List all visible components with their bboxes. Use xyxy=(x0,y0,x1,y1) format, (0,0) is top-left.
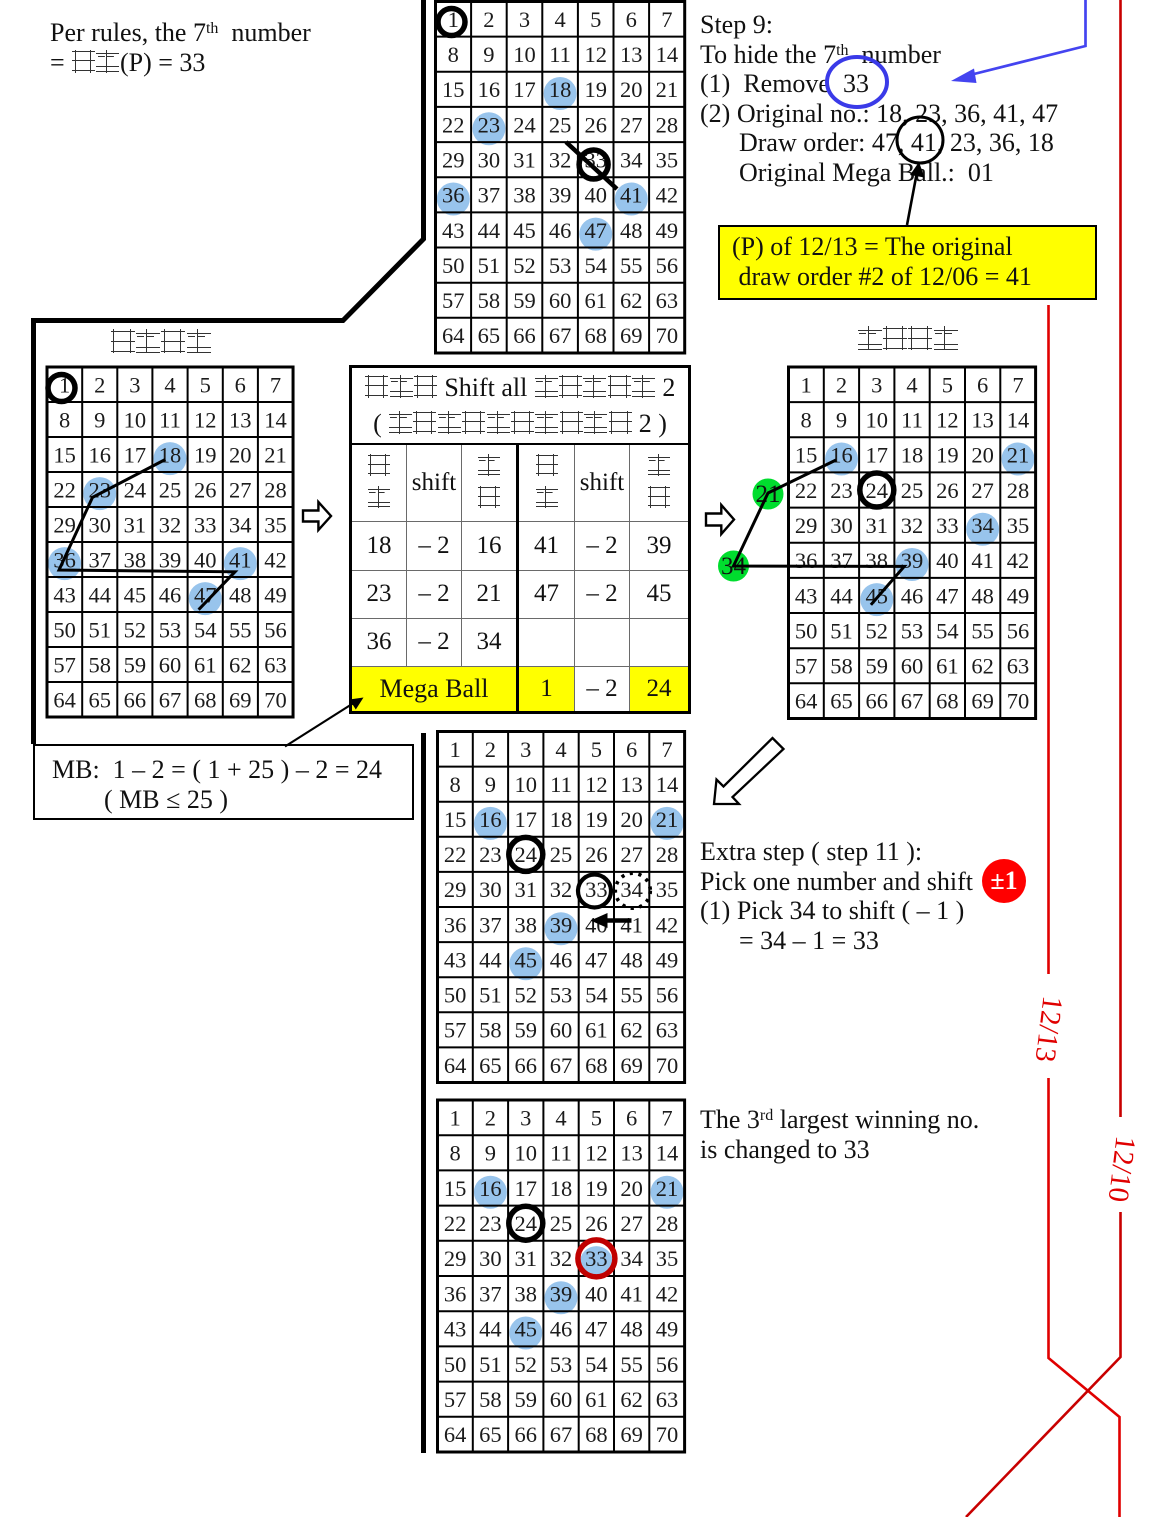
svg-text:14: 14 xyxy=(656,1141,679,1166)
svg-text:58: 58 xyxy=(88,652,111,677)
svg-text:66: 66 xyxy=(866,689,889,714)
svg-text:21: 21 xyxy=(1007,443,1030,468)
svg-text:18: 18 xyxy=(550,1176,573,1201)
svg-text:6: 6 xyxy=(977,372,988,397)
svg-text:60: 60 xyxy=(550,1018,573,1043)
svg-text:10: 10 xyxy=(124,407,147,432)
svg-text:32: 32 xyxy=(549,148,572,173)
svg-text:53: 53 xyxy=(159,617,182,642)
svg-text:15: 15 xyxy=(53,442,76,467)
svg-text:51: 51 xyxy=(830,618,853,643)
svg-text:4: 4 xyxy=(555,1105,566,1130)
svg-text:29: 29 xyxy=(795,513,818,538)
svg-text:20: 20 xyxy=(620,77,643,102)
svg-text:70: 70 xyxy=(264,687,287,712)
svg-text:13: 13 xyxy=(971,408,994,433)
svg-text:42: 42 xyxy=(1007,548,1030,573)
svg-text:19: 19 xyxy=(584,77,607,102)
svg-text:65: 65 xyxy=(830,689,853,714)
svg-text:34: 34 xyxy=(620,877,643,902)
svg-text:35: 35 xyxy=(1007,513,1030,538)
svg-text:2: 2 xyxy=(836,372,847,397)
svg-text:26: 26 xyxy=(585,842,608,867)
svg-text:20: 20 xyxy=(971,443,994,468)
svg-text:43: 43 xyxy=(444,1317,467,1342)
svg-text:23: 23 xyxy=(479,842,502,867)
svg-text:32: 32 xyxy=(550,877,573,902)
svg-text:68: 68 xyxy=(584,323,607,348)
svg-text:40: 40 xyxy=(584,183,607,208)
svg-text:68: 68 xyxy=(585,1053,608,1078)
svg-text:1: 1 xyxy=(449,737,460,762)
svg-text:24: 24 xyxy=(513,112,536,137)
svg-text:26: 26 xyxy=(585,1211,608,1236)
svg-text:7: 7 xyxy=(270,372,281,397)
svg-text:14: 14 xyxy=(1007,408,1030,433)
svg-text:64: 64 xyxy=(442,323,465,348)
svg-text:26: 26 xyxy=(584,112,607,137)
svg-text:68: 68 xyxy=(194,687,217,712)
svg-text:62: 62 xyxy=(620,288,643,313)
svg-text:53: 53 xyxy=(901,618,924,643)
svg-text:42: 42 xyxy=(656,183,679,208)
svg-text:66: 66 xyxy=(124,687,147,712)
svg-text:48: 48 xyxy=(620,1317,643,1342)
svg-text:51: 51 xyxy=(478,253,501,278)
svg-text:2: 2 xyxy=(483,7,494,32)
svg-text:53: 53 xyxy=(550,1352,573,1377)
svg-text:10: 10 xyxy=(866,408,889,433)
svg-text:33: 33 xyxy=(585,877,608,902)
svg-text:20: 20 xyxy=(229,442,252,467)
svg-text:2: 2 xyxy=(485,1105,496,1130)
svg-text:64: 64 xyxy=(53,687,76,712)
svg-text:12: 12 xyxy=(584,42,607,67)
svg-text:40: 40 xyxy=(936,548,959,573)
svg-text:21: 21 xyxy=(656,807,679,832)
svg-text:61: 61 xyxy=(584,288,607,313)
svg-text:53: 53 xyxy=(549,253,572,278)
svg-text:14: 14 xyxy=(264,407,287,432)
svg-text:17: 17 xyxy=(124,442,147,467)
svg-text:39: 39 xyxy=(550,1281,573,1306)
svg-text:64: 64 xyxy=(444,1053,467,1078)
svg-text:11: 11 xyxy=(550,772,572,797)
svg-text:18: 18 xyxy=(549,77,572,102)
svg-text:3: 3 xyxy=(871,372,882,397)
svg-text:22: 22 xyxy=(795,478,818,503)
svg-text:14: 14 xyxy=(656,42,679,67)
svg-text:16: 16 xyxy=(88,442,111,467)
svg-text:51: 51 xyxy=(88,617,111,642)
svg-text:68: 68 xyxy=(936,689,959,714)
svg-text:43: 43 xyxy=(53,582,76,607)
svg-text:50: 50 xyxy=(444,983,467,1008)
svg-text:32: 32 xyxy=(901,513,924,538)
svg-text:10: 10 xyxy=(513,42,536,67)
svg-text:36: 36 xyxy=(442,183,465,208)
svg-text:57: 57 xyxy=(53,652,76,677)
svg-text:42: 42 xyxy=(656,912,679,937)
svg-text:17: 17 xyxy=(515,1176,538,1201)
svg-text:21: 21 xyxy=(656,1176,679,1201)
svg-text:5: 5 xyxy=(591,737,602,762)
svg-text:49: 49 xyxy=(1007,583,1030,608)
svg-text:10: 10 xyxy=(515,1141,538,1166)
svg-text:33: 33 xyxy=(585,1246,608,1271)
svg-text:26: 26 xyxy=(194,477,217,502)
svg-text:20: 20 xyxy=(620,1176,643,1201)
svg-text:37: 37 xyxy=(830,548,853,573)
svg-text:45: 45 xyxy=(124,582,147,607)
svg-text:24: 24 xyxy=(515,842,538,867)
svg-text:15: 15 xyxy=(442,77,465,102)
svg-text:45: 45 xyxy=(515,1317,538,1342)
svg-text:8: 8 xyxy=(448,42,459,67)
svg-text:46: 46 xyxy=(549,218,572,243)
svg-text:16: 16 xyxy=(479,807,502,832)
svg-text:3: 3 xyxy=(520,737,531,762)
svg-text:29: 29 xyxy=(442,148,465,173)
svg-text:27: 27 xyxy=(971,478,994,503)
svg-text:7: 7 xyxy=(1012,372,1023,397)
svg-text:52: 52 xyxy=(515,983,538,1008)
svg-text:36: 36 xyxy=(444,912,467,937)
svg-text:34: 34 xyxy=(620,1246,643,1271)
svg-text:40: 40 xyxy=(585,1281,608,1306)
svg-text:1: 1 xyxy=(449,1105,460,1130)
svg-text:53: 53 xyxy=(550,983,573,1008)
svg-text:57: 57 xyxy=(444,1387,467,1412)
svg-text:49: 49 xyxy=(656,218,679,243)
svg-text:27: 27 xyxy=(620,842,643,867)
svg-text:28: 28 xyxy=(264,477,287,502)
svg-text:56: 56 xyxy=(656,983,679,1008)
svg-text:55: 55 xyxy=(971,618,994,643)
svg-text:63: 63 xyxy=(1007,654,1030,679)
svg-text:37: 37 xyxy=(479,1281,502,1306)
svg-text:63: 63 xyxy=(656,288,679,313)
svg-text:59: 59 xyxy=(515,1387,538,1412)
svg-text:55: 55 xyxy=(229,617,252,642)
svg-text:58: 58 xyxy=(479,1387,502,1412)
svg-text:47: 47 xyxy=(585,1317,608,1342)
svg-text:24: 24 xyxy=(515,1211,538,1236)
svg-text:60: 60 xyxy=(550,1387,573,1412)
svg-text:27: 27 xyxy=(620,1211,643,1236)
svg-text:11: 11 xyxy=(549,42,571,67)
svg-text:37: 37 xyxy=(88,547,111,572)
svg-text:3: 3 xyxy=(129,372,140,397)
svg-text:49: 49 xyxy=(656,947,679,972)
svg-text:30: 30 xyxy=(479,877,502,902)
svg-text:64: 64 xyxy=(795,689,818,714)
svg-text:22: 22 xyxy=(444,842,467,867)
svg-text:49: 49 xyxy=(656,1317,679,1342)
svg-text:13: 13 xyxy=(620,772,643,797)
svg-text:36: 36 xyxy=(444,1281,467,1306)
svg-text:15: 15 xyxy=(444,807,467,832)
svg-text:35: 35 xyxy=(656,877,679,902)
svg-text:4: 4 xyxy=(164,372,175,397)
svg-text:28: 28 xyxy=(656,842,679,867)
svg-text:2: 2 xyxy=(485,737,496,762)
svg-text:4: 4 xyxy=(906,372,917,397)
svg-text:61: 61 xyxy=(585,1018,608,1043)
svg-text:30: 30 xyxy=(88,512,111,537)
svg-text:47: 47 xyxy=(585,947,608,972)
svg-text:64: 64 xyxy=(444,1422,467,1447)
svg-text:65: 65 xyxy=(479,1053,502,1078)
svg-text:5: 5 xyxy=(591,1105,602,1130)
svg-text:44: 44 xyxy=(478,218,501,243)
svg-text:33: 33 xyxy=(194,512,217,537)
svg-text:31: 31 xyxy=(515,1246,538,1271)
svg-text:28: 28 xyxy=(1007,478,1030,503)
svg-text:39: 39 xyxy=(549,183,572,208)
svg-text:6: 6 xyxy=(235,372,246,397)
svg-text:46: 46 xyxy=(901,583,924,608)
svg-text:8: 8 xyxy=(59,407,70,432)
svg-text:39: 39 xyxy=(550,912,573,937)
svg-text:50: 50 xyxy=(795,618,818,643)
svg-text:57: 57 xyxy=(444,1018,467,1043)
svg-text:58: 58 xyxy=(830,654,853,679)
svg-text:69: 69 xyxy=(971,689,994,714)
svg-text:44: 44 xyxy=(830,583,853,608)
svg-text:54: 54 xyxy=(194,617,217,642)
svg-text:35: 35 xyxy=(264,512,287,537)
svg-text:21: 21 xyxy=(264,442,287,467)
svg-text:18: 18 xyxy=(159,442,182,467)
svg-text:69: 69 xyxy=(620,1422,643,1447)
svg-text:48: 48 xyxy=(229,582,252,607)
svg-text:19: 19 xyxy=(585,1176,608,1201)
svg-text:24: 24 xyxy=(866,478,889,503)
svg-text:19: 19 xyxy=(936,443,959,468)
svg-text:18: 18 xyxy=(550,807,573,832)
svg-text:54: 54 xyxy=(585,983,608,1008)
svg-text:58: 58 xyxy=(478,288,501,313)
svg-text:14: 14 xyxy=(656,772,679,797)
svg-text:45: 45 xyxy=(513,218,536,243)
svg-text:5: 5 xyxy=(590,7,601,32)
svg-text:41: 41 xyxy=(971,548,994,573)
svg-text:65: 65 xyxy=(88,687,111,712)
svg-text:25: 25 xyxy=(159,477,182,502)
svg-text:8: 8 xyxy=(449,1141,460,1166)
svg-text:23: 23 xyxy=(830,478,853,503)
svg-text:67: 67 xyxy=(159,687,182,712)
svg-text:25: 25 xyxy=(550,842,573,867)
svg-text:3: 3 xyxy=(519,7,530,32)
svg-text:46: 46 xyxy=(550,947,573,972)
svg-text:15: 15 xyxy=(795,443,818,468)
svg-text:31: 31 xyxy=(866,513,889,538)
svg-text:8: 8 xyxy=(800,408,811,433)
svg-text:54: 54 xyxy=(585,1352,608,1377)
svg-text:68: 68 xyxy=(585,1422,608,1447)
svg-text:4: 4 xyxy=(554,7,565,32)
svg-text:5: 5 xyxy=(200,372,211,397)
svg-text:62: 62 xyxy=(971,654,994,679)
svg-text:62: 62 xyxy=(620,1387,643,1412)
svg-text:29: 29 xyxy=(53,512,76,537)
svg-text:15: 15 xyxy=(444,1176,467,1201)
svg-text:48: 48 xyxy=(620,947,643,972)
svg-text:35: 35 xyxy=(656,1246,679,1271)
svg-text:61: 61 xyxy=(585,1387,608,1412)
svg-text:17: 17 xyxy=(513,77,536,102)
svg-text:55: 55 xyxy=(620,253,643,278)
svg-text:16: 16 xyxy=(478,77,501,102)
svg-text:52: 52 xyxy=(515,1352,538,1377)
svg-text:43: 43 xyxy=(444,947,467,972)
svg-text:11: 11 xyxy=(159,407,181,432)
svg-text:61: 61 xyxy=(194,652,217,677)
svg-text:59: 59 xyxy=(866,654,889,679)
svg-text:50: 50 xyxy=(442,253,465,278)
svg-text:55: 55 xyxy=(620,1352,643,1377)
svg-text:44: 44 xyxy=(88,582,111,607)
svg-text:31: 31 xyxy=(513,148,536,173)
svg-text:34: 34 xyxy=(971,513,994,538)
svg-text:36: 36 xyxy=(795,548,818,573)
svg-text:59: 59 xyxy=(515,1018,538,1043)
svg-text:6: 6 xyxy=(626,7,637,32)
svg-text:22: 22 xyxy=(53,477,76,502)
svg-text:43: 43 xyxy=(442,218,465,243)
svg-text:48: 48 xyxy=(620,218,643,243)
svg-text:40: 40 xyxy=(194,547,217,572)
svg-text:45: 45 xyxy=(515,947,538,972)
svg-text:25: 25 xyxy=(549,112,572,137)
svg-text:29: 29 xyxy=(444,877,467,902)
svg-text:28: 28 xyxy=(656,112,679,137)
svg-text:13: 13 xyxy=(620,42,643,67)
svg-text:38: 38 xyxy=(515,912,538,937)
svg-text:31: 31 xyxy=(515,877,538,902)
svg-text:9: 9 xyxy=(94,407,105,432)
svg-text:54: 54 xyxy=(584,253,607,278)
svg-text:17: 17 xyxy=(866,443,889,468)
svg-text:16: 16 xyxy=(830,443,853,468)
svg-text:50: 50 xyxy=(444,1352,467,1377)
svg-text:43: 43 xyxy=(795,583,818,608)
svg-text:12: 12 xyxy=(585,1141,608,1166)
svg-text:13: 13 xyxy=(229,407,252,432)
svg-text:66: 66 xyxy=(513,323,536,348)
svg-text:7: 7 xyxy=(661,7,672,32)
svg-text:5: 5 xyxy=(942,372,953,397)
svg-text:30: 30 xyxy=(830,513,853,538)
svg-text:30: 30 xyxy=(478,148,501,173)
svg-text:63: 63 xyxy=(656,1387,679,1412)
svg-text:34: 34 xyxy=(229,512,252,537)
svg-text:6: 6 xyxy=(626,1105,637,1130)
svg-text:56: 56 xyxy=(656,1352,679,1377)
svg-text:22: 22 xyxy=(442,112,465,137)
svg-text:51: 51 xyxy=(479,983,502,1008)
svg-text:65: 65 xyxy=(478,323,501,348)
svg-text:20: 20 xyxy=(620,807,643,832)
svg-text:46: 46 xyxy=(550,1317,573,1342)
svg-text:67: 67 xyxy=(549,323,572,348)
svg-text:69: 69 xyxy=(620,1053,643,1078)
svg-text:29: 29 xyxy=(444,1246,467,1271)
svg-text:23: 23 xyxy=(479,1211,502,1236)
svg-text:27: 27 xyxy=(620,112,643,137)
svg-text:54: 54 xyxy=(936,618,959,643)
svg-text:65: 65 xyxy=(479,1422,502,1447)
svg-text:58: 58 xyxy=(479,1018,502,1043)
svg-text:31: 31 xyxy=(124,512,147,537)
svg-text:22: 22 xyxy=(444,1211,467,1236)
svg-text:8: 8 xyxy=(449,772,460,797)
svg-text:42: 42 xyxy=(264,547,287,572)
svg-text:37: 37 xyxy=(478,183,501,208)
svg-text:51: 51 xyxy=(479,1352,502,1377)
svg-text:6: 6 xyxy=(626,737,637,762)
svg-text:57: 57 xyxy=(442,288,465,313)
svg-text:60: 60 xyxy=(159,652,182,677)
svg-text:27: 27 xyxy=(229,477,252,502)
svg-text:47: 47 xyxy=(584,218,607,243)
svg-text:25: 25 xyxy=(901,478,924,503)
svg-text:9: 9 xyxy=(836,408,847,433)
svg-text:59: 59 xyxy=(513,288,536,313)
svg-text:13: 13 xyxy=(620,1141,643,1166)
svg-text:57: 57 xyxy=(795,654,818,679)
svg-text:52: 52 xyxy=(124,617,147,642)
svg-text:52: 52 xyxy=(866,618,889,643)
svg-text:70: 70 xyxy=(1007,689,1030,714)
svg-text:38: 38 xyxy=(124,547,147,572)
svg-text:23: 23 xyxy=(478,112,501,137)
svg-text:38: 38 xyxy=(866,548,889,573)
svg-text:12: 12 xyxy=(936,408,959,433)
svg-text:16: 16 xyxy=(479,1176,502,1201)
svg-text:44: 44 xyxy=(479,1317,502,1342)
svg-text:59: 59 xyxy=(124,652,147,677)
svg-text:41: 41 xyxy=(620,183,643,208)
svg-text:9: 9 xyxy=(485,772,496,797)
svg-text:70: 70 xyxy=(656,1422,679,1447)
svg-text:11: 11 xyxy=(550,1141,572,1166)
svg-text:37: 37 xyxy=(479,912,502,937)
svg-text:44: 44 xyxy=(479,947,502,972)
svg-text:41: 41 xyxy=(620,1281,643,1306)
svg-text:41: 41 xyxy=(229,547,252,572)
svg-text:63: 63 xyxy=(656,1018,679,1043)
svg-text:39: 39 xyxy=(901,548,924,573)
svg-text:34: 34 xyxy=(620,148,643,173)
svg-text:12: 12 xyxy=(585,772,608,797)
svg-text:62: 62 xyxy=(620,1018,643,1043)
svg-text:30: 30 xyxy=(479,1246,502,1271)
svg-text:18: 18 xyxy=(901,443,924,468)
svg-text:4: 4 xyxy=(555,737,566,762)
svg-text:41: 41 xyxy=(620,912,643,937)
svg-text:9: 9 xyxy=(485,1141,496,1166)
svg-text:32: 32 xyxy=(159,512,182,537)
svg-text:55: 55 xyxy=(620,983,643,1008)
svg-text:67: 67 xyxy=(550,1053,573,1078)
svg-text:42: 42 xyxy=(656,1281,679,1306)
svg-text:38: 38 xyxy=(515,1281,538,1306)
svg-text:67: 67 xyxy=(901,689,924,714)
svg-text:12: 12 xyxy=(194,407,217,432)
